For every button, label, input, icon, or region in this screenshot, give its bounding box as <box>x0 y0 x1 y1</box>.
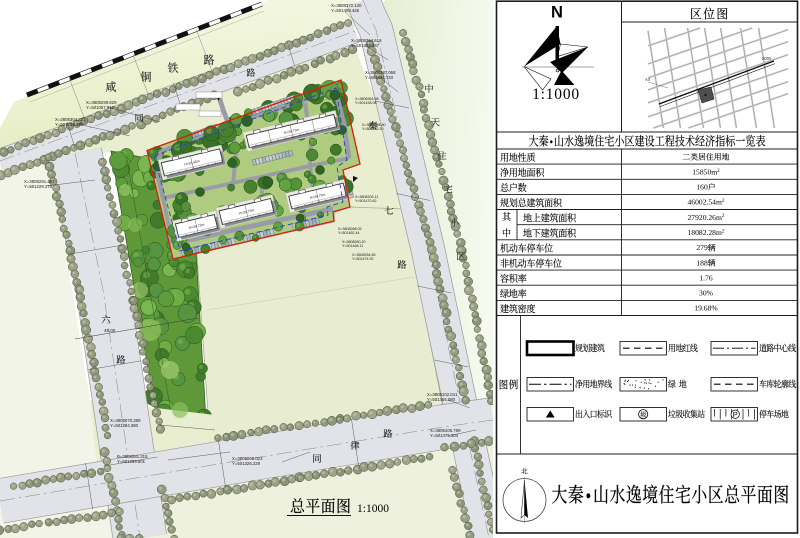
svg-text:Y=501468.11: Y=501468.11 <box>342 244 363 248</box>
svg-text:27920.26m2: 27920.26m2 <box>688 213 725 222</box>
svg-text:Y=501438.08: Y=501438.08 <box>355 101 376 105</box>
svg-text:30%: 30% <box>699 289 714 298</box>
svg-text:Y=501434.733: Y=501434.733 <box>365 75 394 80</box>
svg-text:A4: A4 <box>645 77 651 82</box>
svg-text:Y=501238.345: Y=501238.345 <box>55 122 84 127</box>
svg-text:45.00: 45.00 <box>104 328 116 333</box>
svg-text:Y=501476.304: Y=501476.304 <box>430 433 459 438</box>
svg-text:19.68%: 19.68% <box>694 304 718 313</box>
svg-text:Y=501424.067: Y=501424.067 <box>351 43 380 48</box>
svg-text:Y=501057.917: Y=501057.917 <box>86 105 115 110</box>
svg-text:15850m2: 15850m2 <box>692 167 720 176</box>
svg-text:160: 160 <box>696 183 708 192</box>
svg-text:Y=501465.080: Y=501465.080 <box>427 397 456 402</box>
svg-text:Y=501299.501: Y=501299.501 <box>117 459 146 464</box>
svg-text:1.76: 1.76 <box>699 273 712 282</box>
svg-text:279: 279 <box>696 243 708 252</box>
svg-text:1:1000: 1:1000 <box>357 503 389 515</box>
svg-text:Y=501474.92: Y=501474.92 <box>352 257 373 261</box>
svg-text:2000: 2000 <box>762 56 772 61</box>
svg-text:Y=501408.426: Y=501408.426 <box>331 8 360 13</box>
svg-text:Y=501326.229: Y=501326.229 <box>232 461 261 466</box>
svg-text:Y=501229.178: Y=501229.178 <box>24 184 53 189</box>
svg-text:188: 188 <box>696 258 708 267</box>
svg-text:Y=501470.62: Y=501470.62 <box>355 199 376 203</box>
svg-text:N: N <box>551 4 563 22</box>
svg-text:1:1000: 1:1000 <box>532 86 580 103</box>
svg-text:18082.28m2: 18082.28m2 <box>688 228 725 237</box>
svg-text:Y=501284.380: Y=501284.380 <box>110 423 139 428</box>
svg-text:Y=501462.44: Y=501462.44 <box>338 231 359 235</box>
svg-text:P: P <box>733 410 738 419</box>
svg-text:46002.54m2: 46002.54m2 <box>688 198 725 207</box>
